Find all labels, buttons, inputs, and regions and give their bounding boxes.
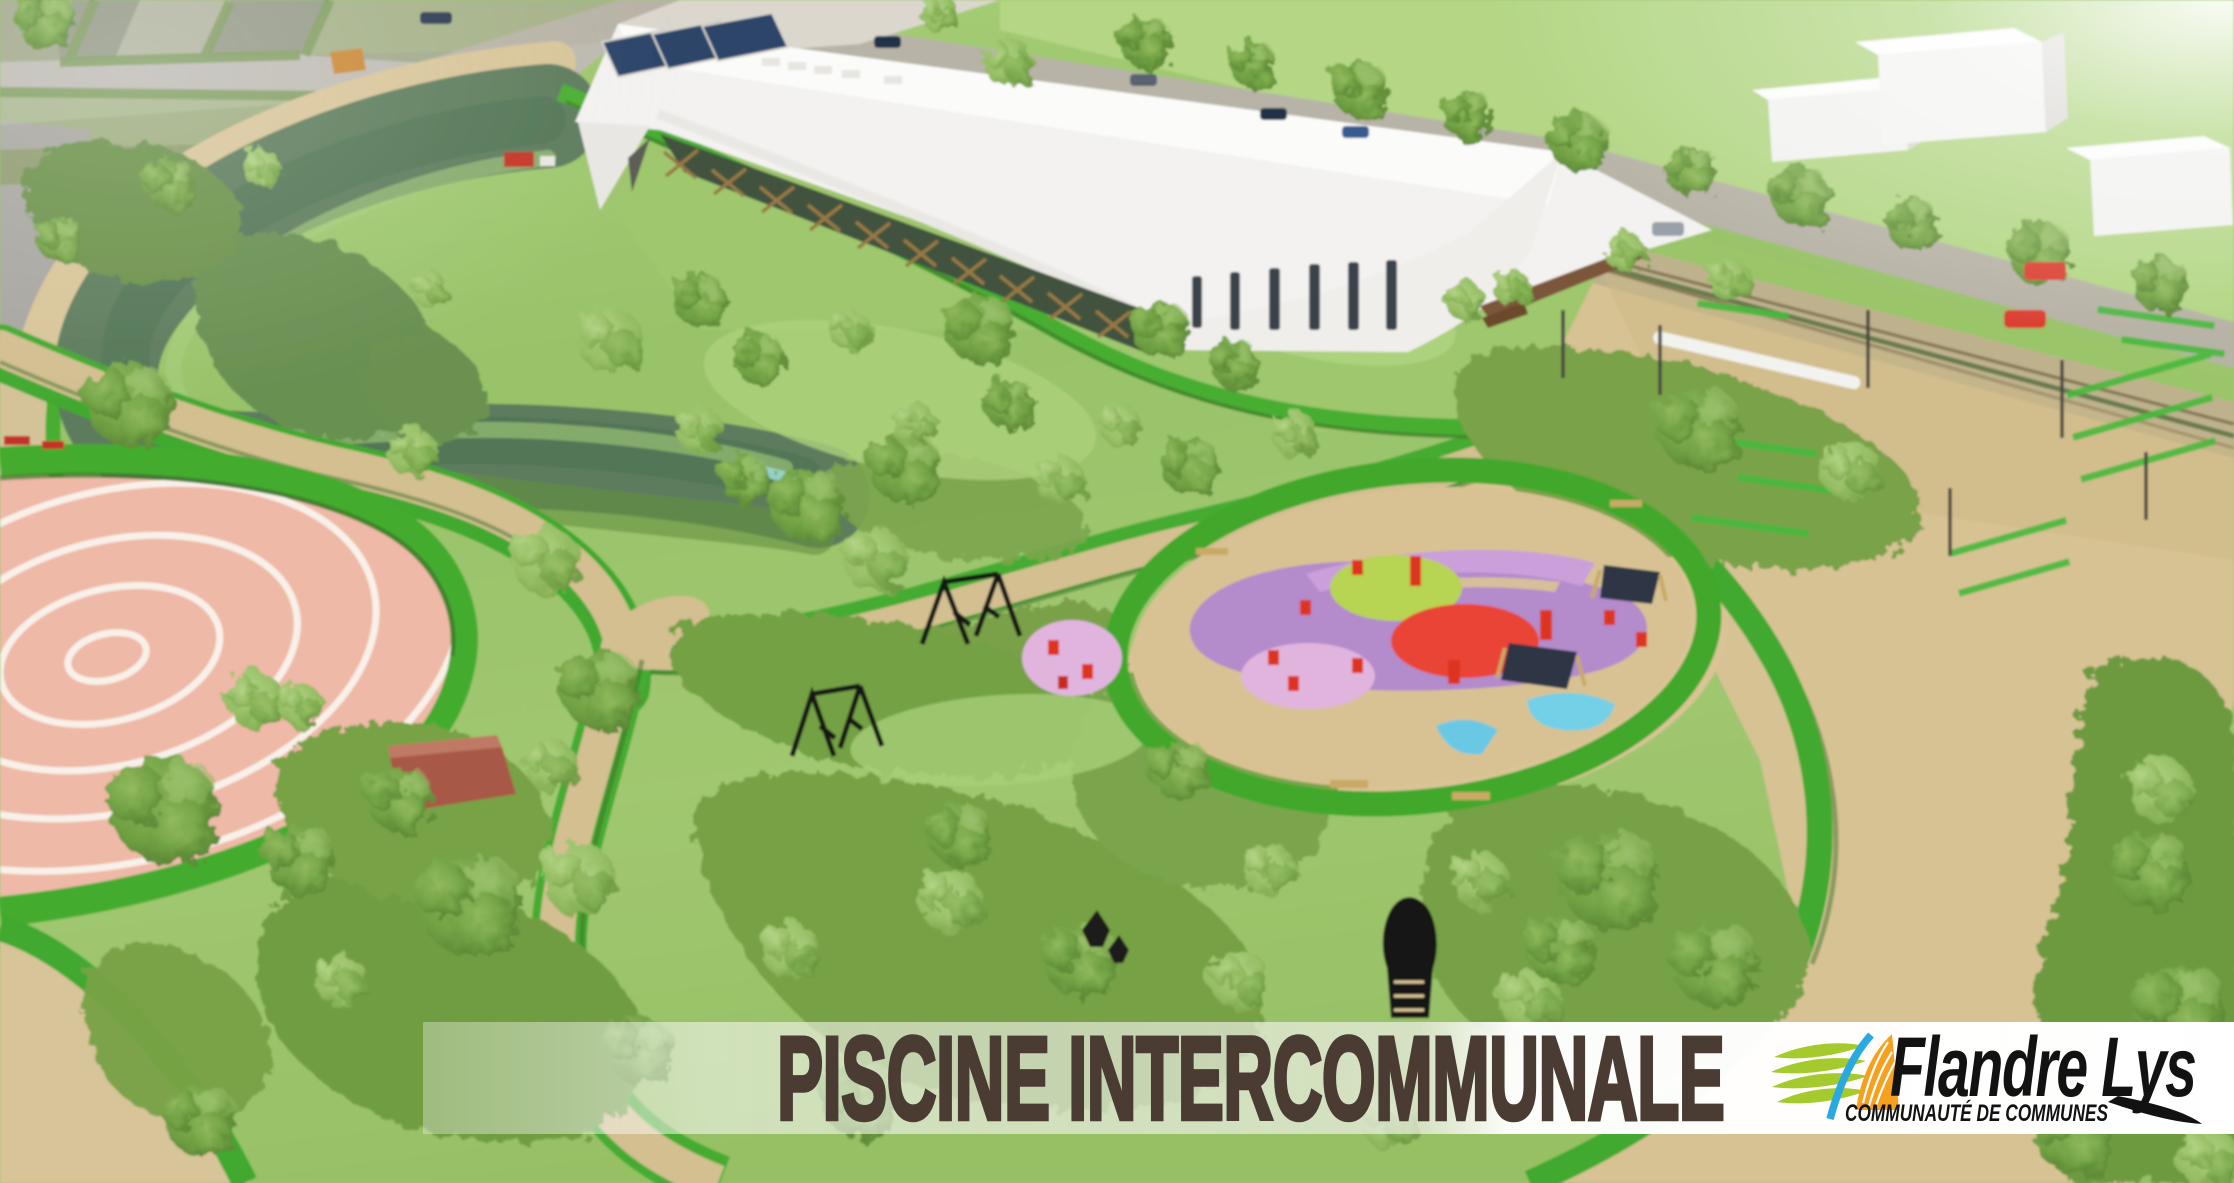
svg-text:COMMUNAUTÉ DE COMMUNES: COMMUNAUTÉ DE COMMUNES [1845,1100,2108,1126]
svg-text:PISCINE INTERCOMMUNALE: PISCINE INTERCOMMUNALE [777,1013,1724,1145]
